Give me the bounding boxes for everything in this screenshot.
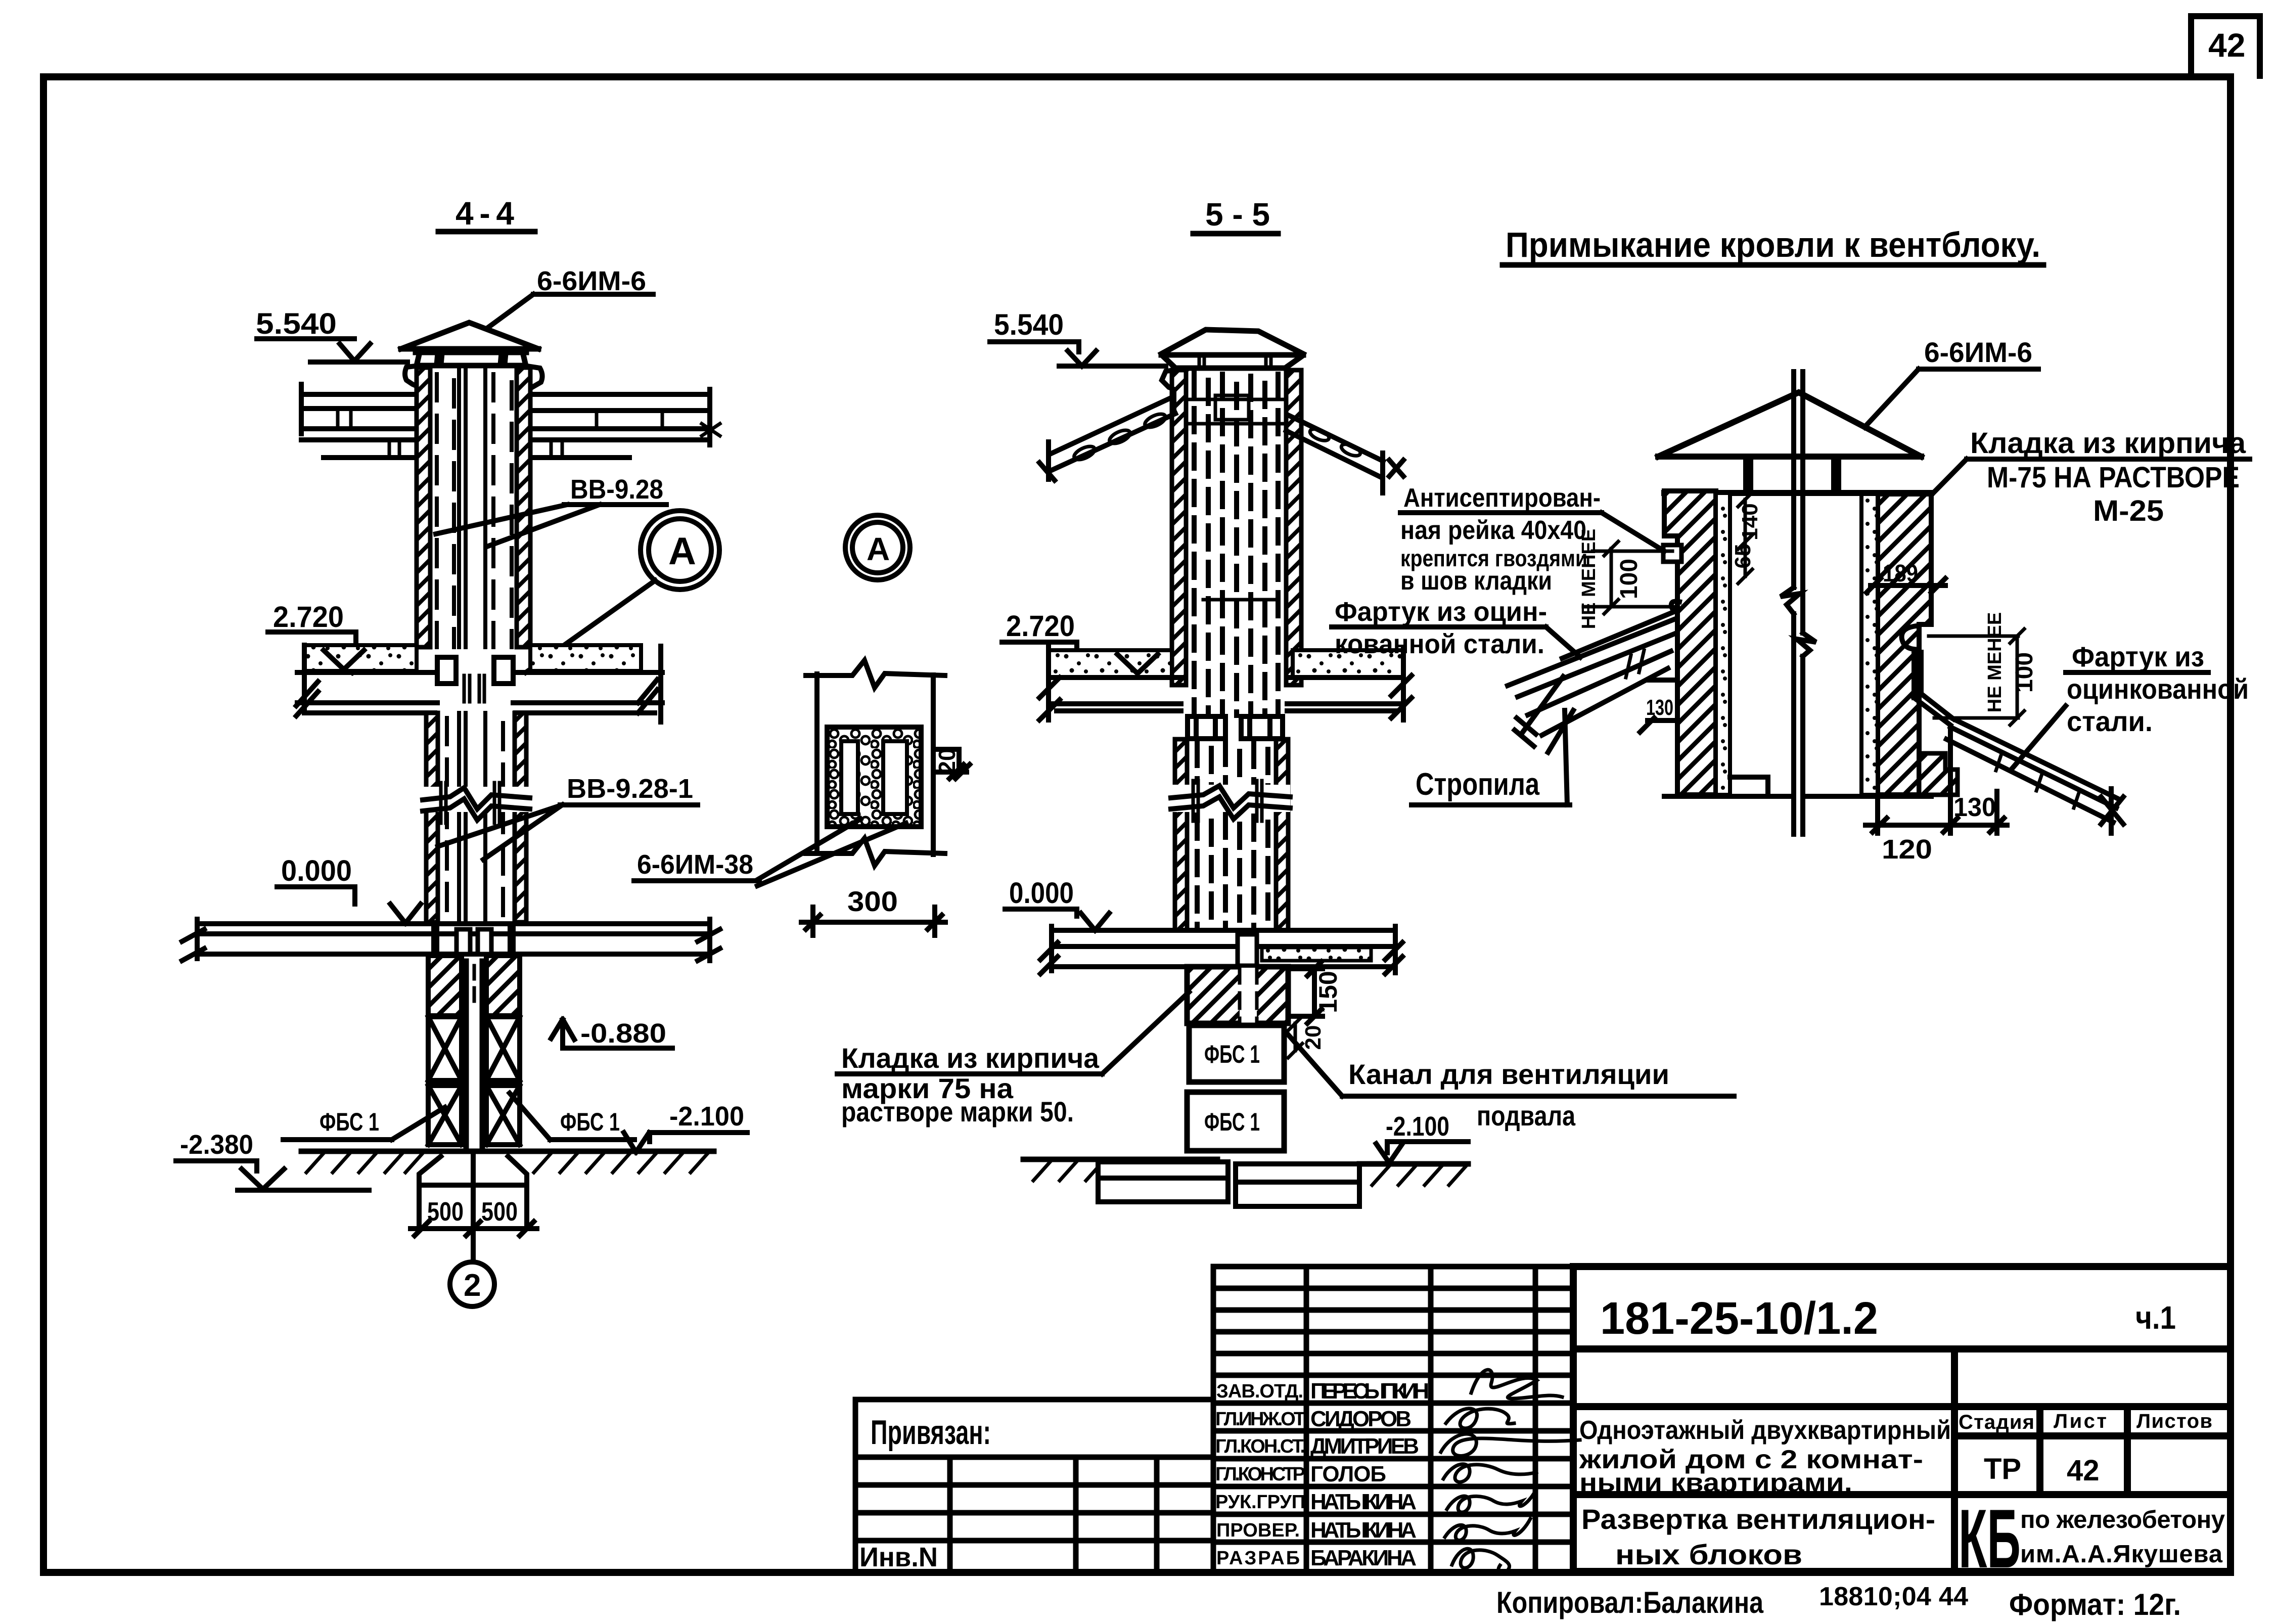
svg-text:Одноэтажный двухквартирный: Одноэтажный двухквартирный: [1579, 1416, 1951, 1445]
svg-text:Стадия: Стадия: [1959, 1411, 2034, 1433]
svg-text:ФБС 1: ФБС 1: [1204, 1108, 1260, 1136]
svg-text:-2.380: -2.380: [180, 1130, 253, 1160]
svg-text:ЗАВ.ОТД.: ЗАВ.ОТД.: [1216, 1381, 1303, 1402]
svg-text:Формат: 12г.: Формат: 12г.: [2009, 1588, 2181, 1621]
svg-text:Кладка из кирпича: Кладка из кирпича: [1970, 427, 2246, 460]
svg-text:НАТЫКИНА: НАТЫКИНА: [1310, 1490, 1417, 1514]
svg-text:в шов кладки: в шов кладки: [1400, 566, 1552, 596]
svg-text:стали.: стали.: [2067, 705, 2153, 737]
svg-text:А: А: [867, 531, 890, 567]
svg-text:-0.880: -0.880: [580, 1018, 666, 1049]
svg-text:ГЛ.КОНСТР: ГЛ.КОНСТР: [1215, 1464, 1305, 1485]
svg-text:Фартук из оцин-: Фартук из оцин-: [1335, 597, 1547, 627]
svg-text:4-4: 4-4: [456, 195, 514, 232]
svg-text:Листов: Листов: [2136, 1410, 2212, 1432]
svg-text:6-6ИМ-38: 6-6ИМ-38: [637, 849, 753, 880]
svg-text:ная рейка 40х40: ная рейка 40х40: [1400, 516, 1586, 545]
svg-text:-2.100: -2.100: [669, 1101, 744, 1132]
svg-text:Примыкание кровли к вент: Примыкание кровли к вентблоку.: [1506, 225, 2040, 264]
svg-text:Развертка вентиляцион-: Развертка вентиляцион-: [1581, 1503, 1935, 1535]
svg-text:ФБС 1: ФБС 1: [1204, 1040, 1260, 1068]
svg-text:ПРОВЕР.: ПРОВЕР.: [1216, 1520, 1300, 1541]
svg-text:СИДОРОВ: СИДОРОВ: [1310, 1407, 1412, 1431]
svg-text:6-6ИМ-6: 6-6ИМ-6: [1924, 336, 2032, 368]
svg-text:120: 120: [1882, 834, 1932, 865]
svg-text:НАТЫКИНА: НАТЫКИНА: [1310, 1518, 1417, 1543]
svg-text:20: 20: [1301, 1025, 1326, 1050]
svg-text:ГЛ.КОН.СТ.: ГЛ.КОН.СТ.: [1215, 1436, 1305, 1457]
svg-text:РУК.ГРУП: РУК.ГРУП: [1215, 1492, 1305, 1513]
svg-text:42: 42: [2067, 1454, 2100, 1487]
svg-text:оцинкованной: оцинкованной: [2067, 673, 2249, 705]
svg-text:0.000: 0.000: [281, 854, 352, 887]
svg-text:НЕ МЕНЕЕ: НЕ МЕНЕЕ: [1578, 529, 1600, 629]
svg-text:5-5: 5-5: [1205, 196, 1270, 233]
svg-text:130: 130: [1953, 793, 1996, 822]
svg-text:5.540: 5.540: [256, 307, 337, 340]
svg-text:ФБС 1: ФБС 1: [320, 1108, 379, 1136]
svg-text:-2.100: -2.100: [1386, 1111, 1449, 1142]
svg-text:А: А: [668, 530, 696, 573]
svg-text:НЕ МЕНЕЕ: НЕ МЕНЕЕ: [1984, 612, 2006, 712]
svg-text:Лист: Лист: [2054, 1410, 2107, 1432]
svg-text:42: 42: [2208, 26, 2245, 64]
svg-text:ных блоков: ных блоков: [1615, 1539, 1802, 1570]
svg-text:2: 2: [464, 1268, 481, 1303]
svg-text:Антисептирован-: Антисептирован-: [1403, 483, 1601, 513]
svg-text:100: 100: [1616, 559, 1643, 599]
svg-text:ПЕРЕСЫПКИН: ПЕРЕСЫПКИН: [1310, 1379, 1429, 1404]
svg-text:Канал для вентиляции: Канал для вентиляции: [1348, 1058, 1669, 1090]
svg-text:по железобетону: по железобетону: [2020, 1506, 2225, 1533]
svg-text:ВВ-9.28-1: ВВ-9.28-1: [567, 774, 693, 804]
svg-text:ГЛ.ИНЖ.ОТ: ГЛ.ИНЖ.ОТ: [1215, 1409, 1305, 1430]
svg-text:Стропила: Стропила: [1416, 767, 1539, 802]
svg-text:им.А.А.Якушева: им.А.А.Якушева: [2020, 1541, 2223, 1568]
svg-text:18810;04 44: 18810;04 44: [1819, 1582, 1968, 1611]
svg-text:100: 100: [2011, 652, 2038, 693]
svg-text:М-75 НА РАСТВОРЕ: М-75 НА РАСТВОРЕ: [1987, 461, 2240, 494]
svg-text:КБ: КБ: [1959, 1493, 2021, 1586]
svg-text:181-25-10/1.2: 181-25-10/1.2: [1600, 1293, 1878, 1344]
svg-text:М-25: М-25: [2093, 494, 2164, 527]
svg-text:РАЗРАБ: РАЗРАБ: [1216, 1548, 1300, 1569]
svg-text:130: 130: [1646, 695, 1673, 720]
svg-text:ными квартирами.: ными квартирами.: [1579, 1468, 1852, 1498]
svg-text:БАРАКИНА: БАРАКИНА: [1310, 1546, 1417, 1570]
svg-text:Фартук из: Фартук из: [2072, 641, 2204, 672]
svg-text:500: 500: [427, 1197, 464, 1227]
svg-text:Кладка из кирпича: Кладка из кирпича: [841, 1042, 1100, 1074]
svg-text:2.720: 2.720: [273, 601, 344, 634]
svg-text:2.720: 2.720: [1006, 610, 1075, 643]
svg-text:65: 65: [1731, 544, 1755, 569]
svg-text:ДМИТРИЕВ: ДМИТРИЕВ: [1310, 1434, 1419, 1459]
svg-text:Привязан:: Привязан:: [871, 1413, 991, 1452]
svg-text:20: 20: [934, 748, 960, 774]
svg-text:ГОЛОБ: ГОЛОБ: [1310, 1462, 1386, 1486]
svg-text:5.540: 5.540: [994, 308, 1064, 341]
svg-text:ФБС 1: ФБС 1: [560, 1108, 620, 1136]
svg-text:кованной стали.: кованной стали.: [1335, 629, 1544, 659]
svg-text:подвала: подвала: [1477, 1100, 1576, 1132]
svg-text:140: 140: [1738, 503, 1762, 540]
svg-text:300: 300: [847, 885, 898, 917]
svg-text:0.000: 0.000: [1009, 877, 1074, 910]
svg-text:ч.1: ч.1: [2135, 1299, 2176, 1336]
svg-text:ВВ-9.28: ВВ-9.28: [570, 474, 663, 505]
svg-text:растворе марки 50.: растворе марки 50.: [841, 1096, 1074, 1127]
svg-text:Копировал:Балакина: Копировал:Балакина: [1496, 1586, 1764, 1619]
svg-text:ТР: ТР: [1984, 1453, 2021, 1485]
svg-text:150: 150: [1314, 971, 1342, 1013]
svg-text:Инв.N: Инв.N: [859, 1542, 938, 1572]
svg-text:500: 500: [481, 1197, 518, 1227]
